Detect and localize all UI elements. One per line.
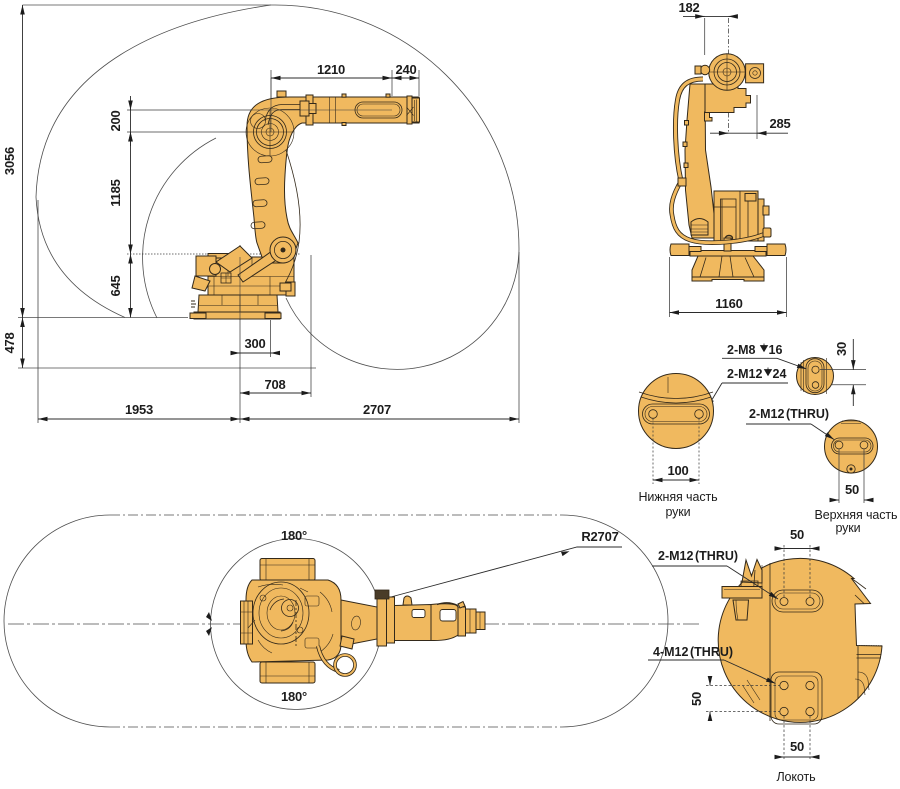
- svg-text:2-M12: 2-M12: [658, 549, 693, 563]
- svg-text:708: 708: [264, 377, 285, 392]
- svg-text:24: 24: [773, 367, 787, 381]
- svg-text:50: 50: [790, 527, 804, 542]
- svg-text:240: 240: [395, 62, 416, 77]
- svg-text:2707: 2707: [363, 402, 391, 417]
- svg-text:3056: 3056: [2, 147, 17, 175]
- svg-text:100: 100: [667, 463, 688, 478]
- svg-text:1210: 1210: [317, 62, 345, 77]
- svg-text:Нижняя часть: Нижняя часть: [638, 490, 717, 504]
- svg-text:1160: 1160: [715, 296, 742, 311]
- svg-text:1185: 1185: [108, 179, 123, 206]
- svg-text:30: 30: [834, 342, 849, 356]
- svg-text:4-M12: 4-M12: [653, 645, 688, 659]
- svg-text:285: 285: [769, 116, 790, 131]
- svg-text:Локоть: Локоть: [776, 770, 815, 784]
- svg-text:50: 50: [689, 692, 704, 706]
- svg-text:2-M8: 2-M8: [727, 343, 756, 357]
- svg-text:50: 50: [845, 482, 859, 497]
- svg-text:(THRU): (THRU): [695, 549, 738, 563]
- svg-text:(THRU): (THRU): [690, 645, 733, 659]
- svg-text:16: 16: [769, 343, 783, 357]
- svg-text:182: 182: [678, 0, 699, 15]
- svg-text:руки: руки: [665, 505, 690, 519]
- svg-text:R2707: R2707: [581, 529, 618, 544]
- svg-text:2-M12: 2-M12: [749, 407, 784, 421]
- svg-text:478: 478: [2, 332, 17, 353]
- svg-text:180°: 180°: [281, 528, 307, 543]
- svg-text:180°: 180°: [281, 689, 307, 704]
- svg-text:руки: руки: [835, 521, 860, 535]
- svg-text:(THRU): (THRU): [786, 407, 829, 421]
- svg-text:2-M12: 2-M12: [727, 367, 762, 381]
- svg-text:50: 50: [790, 739, 804, 754]
- svg-text:1953: 1953: [125, 402, 153, 417]
- svg-text:200: 200: [108, 110, 123, 131]
- svg-text:300: 300: [244, 336, 265, 351]
- svg-text:Верхняя часть: Верхняя часть: [815, 508, 898, 522]
- svg-text:645: 645: [108, 275, 123, 296]
